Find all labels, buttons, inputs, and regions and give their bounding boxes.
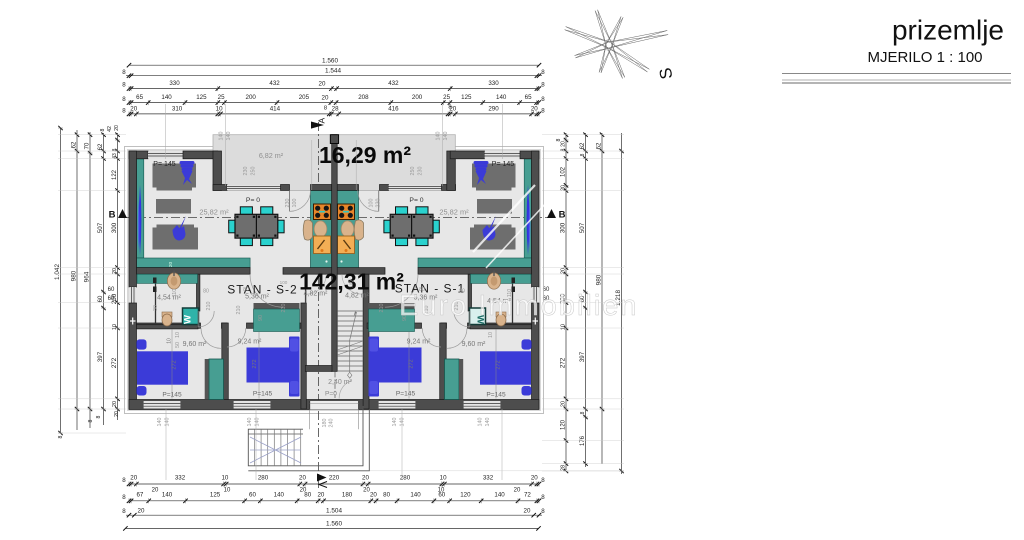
svg-text:25,82 m²: 25,82 m² <box>199 208 229 217</box>
svg-text:8: 8 <box>541 508 545 515</box>
svg-text:62: 62 <box>580 142 586 149</box>
svg-text:8: 8 <box>122 477 126 484</box>
svg-text:28: 28 <box>561 465 567 471</box>
svg-text:10: 10 <box>167 338 173 344</box>
svg-text:8: 8 <box>541 108 545 115</box>
svg-text:272: 272 <box>409 359 415 368</box>
svg-text:30: 30 <box>153 305 159 311</box>
svg-text:140: 140 <box>162 491 173 498</box>
svg-text:9,60 m²: 9,60 m² <box>462 341 486 348</box>
svg-text:P=145: P=145 <box>396 391 416 398</box>
svg-text:1.504: 1.504 <box>326 507 342 514</box>
svg-text:432: 432 <box>269 80 280 87</box>
svg-text:60: 60 <box>98 295 104 302</box>
svg-text:125: 125 <box>196 94 207 101</box>
svg-text:332: 332 <box>175 474 186 481</box>
svg-text:90: 90 <box>258 315 264 321</box>
svg-text:10: 10 <box>221 474 228 481</box>
svg-text:102: 102 <box>561 166 567 177</box>
svg-text:8: 8 <box>580 411 586 414</box>
svg-text:140: 140 <box>400 418 406 427</box>
svg-text:prizemlje: prizemlje <box>892 15 1004 46</box>
svg-text:6,82 m²: 6,82 m² <box>259 151 284 160</box>
svg-text:P=145: P=145 <box>253 391 273 398</box>
svg-text:20: 20 <box>114 411 120 417</box>
svg-text:125: 125 <box>461 94 472 101</box>
svg-text:507: 507 <box>97 222 104 233</box>
svg-text:62: 62 <box>597 142 603 149</box>
svg-text:230: 230 <box>243 167 249 176</box>
svg-text:8: 8 <box>541 494 545 501</box>
svg-text:10: 10 <box>440 474 447 481</box>
svg-text:8: 8 <box>541 81 545 88</box>
svg-text:432: 432 <box>388 80 399 87</box>
svg-text:8: 8 <box>541 96 545 103</box>
svg-text:P= 145: P= 145 <box>153 161 175 168</box>
svg-text:8: 8 <box>58 435 64 438</box>
svg-text:140: 140 <box>485 418 491 427</box>
svg-text:20: 20 <box>561 185 567 191</box>
svg-text:250: 250 <box>410 167 416 176</box>
svg-text:20: 20 <box>370 491 377 498</box>
svg-text:MJERILO 1 : 100: MJERILO 1 : 100 <box>867 49 982 66</box>
svg-text:10: 10 <box>488 332 494 338</box>
svg-text:205: 205 <box>299 94 310 101</box>
svg-text:1.042: 1.042 <box>54 264 61 280</box>
svg-text:414: 414 <box>270 106 281 113</box>
svg-text:25,82 m²: 25,82 m² <box>439 208 469 217</box>
svg-text:280: 280 <box>258 474 269 481</box>
svg-text:180: 180 <box>322 419 328 428</box>
svg-text:140: 140 <box>157 418 163 427</box>
svg-text:8: 8 <box>324 106 327 112</box>
svg-text:65: 65 <box>136 94 143 101</box>
svg-text:120: 120 <box>460 491 471 498</box>
svg-text:8: 8 <box>88 419 94 422</box>
svg-text:1.544: 1.544 <box>325 68 341 75</box>
svg-text:20: 20 <box>299 474 306 481</box>
svg-text:20: 20 <box>514 488 521 494</box>
svg-text:62: 62 <box>72 141 78 148</box>
svg-text:10: 10 <box>112 324 118 330</box>
svg-text:210: 210 <box>206 302 212 311</box>
svg-text:140: 140 <box>219 132 225 141</box>
svg-text:P= 145: P= 145 <box>492 161 514 168</box>
svg-text:S: S <box>656 66 677 80</box>
svg-text:272: 272 <box>252 359 258 368</box>
svg-text:20: 20 <box>317 491 324 498</box>
svg-text:100: 100 <box>292 199 298 208</box>
svg-text:980: 980 <box>71 270 78 281</box>
svg-text:8: 8 <box>122 494 126 501</box>
svg-text:210: 210 <box>281 304 287 313</box>
svg-text:80: 80 <box>243 287 249 293</box>
svg-text:507: 507 <box>579 222 586 233</box>
svg-text:B: B <box>109 210 116 221</box>
svg-text:140: 140 <box>255 418 261 427</box>
svg-text:9,60 m²: 9,60 m² <box>183 341 207 348</box>
svg-text:8: 8 <box>448 104 451 110</box>
svg-text:332: 332 <box>483 474 494 481</box>
svg-text:210: 210 <box>379 304 385 313</box>
svg-text:P= 0: P= 0 <box>246 197 260 204</box>
svg-text:140: 140 <box>496 94 507 101</box>
svg-text:230: 230 <box>285 199 291 208</box>
svg-text:140: 140 <box>161 94 172 101</box>
svg-text:10: 10 <box>561 324 567 330</box>
svg-text:100: 100 <box>280 280 288 285</box>
svg-text:10: 10 <box>175 332 181 338</box>
svg-text:8: 8 <box>556 138 562 141</box>
svg-text:4,82 m²: 4,82 m² <box>345 293 369 300</box>
svg-text:330: 330 <box>169 80 180 87</box>
svg-text:5,36 m²: 5,36 m² <box>245 294 269 301</box>
svg-text:230: 230 <box>418 167 424 176</box>
svg-text:20: 20 <box>130 474 137 481</box>
svg-text:8: 8 <box>122 108 126 115</box>
svg-text:300: 300 <box>560 222 567 233</box>
svg-text:20: 20 <box>112 268 118 274</box>
svg-text:20: 20 <box>561 401 567 407</box>
svg-text:220: 220 <box>329 474 340 481</box>
svg-text:60: 60 <box>249 491 256 498</box>
svg-text:300: 300 <box>111 222 118 233</box>
svg-text:Euro Immobilien: Euro Immobilien <box>399 290 639 322</box>
svg-text:272: 272 <box>560 357 567 368</box>
svg-text:140: 140 <box>436 132 442 141</box>
svg-text:50: 50 <box>175 342 181 348</box>
svg-text:P=145: P=145 <box>162 392 182 399</box>
svg-text:20: 20 <box>114 125 120 131</box>
svg-text:20: 20 <box>168 262 174 268</box>
svg-text:60: 60 <box>108 296 115 302</box>
svg-text:20: 20 <box>152 488 159 494</box>
svg-text:140: 140 <box>274 491 285 498</box>
svg-text:272: 272 <box>172 360 178 369</box>
svg-text:70: 70 <box>85 142 91 149</box>
svg-text:140: 140 <box>443 132 449 141</box>
svg-text:W: W <box>183 315 194 324</box>
svg-text:280: 280 <box>400 474 411 481</box>
svg-text:120: 120 <box>561 419 567 430</box>
svg-text:65: 65 <box>525 94 532 101</box>
svg-text:20: 20 <box>362 474 369 481</box>
svg-text:980: 980 <box>596 274 603 285</box>
svg-text:272: 272 <box>496 360 502 369</box>
svg-text:397: 397 <box>579 351 586 362</box>
svg-text:8: 8 <box>541 477 545 484</box>
svg-text:B: B <box>559 210 566 221</box>
svg-text:62: 62 <box>98 143 104 150</box>
svg-text:8: 8 <box>96 415 102 418</box>
svg-text:1.560: 1.560 <box>326 521 342 528</box>
svg-text:20: 20 <box>322 95 329 102</box>
svg-text:180: 180 <box>342 491 353 498</box>
svg-text:230: 230 <box>376 199 382 208</box>
svg-text:100: 100 <box>349 280 354 288</box>
svg-text:110: 110 <box>172 289 178 298</box>
svg-text:8: 8 <box>580 153 586 156</box>
svg-text:28: 28 <box>332 106 339 113</box>
svg-text:9,24 m²: 9,24 m² <box>407 339 431 346</box>
svg-text:290: 290 <box>488 106 499 113</box>
svg-text:25: 25 <box>443 94 450 101</box>
svg-text:397: 397 <box>97 351 104 362</box>
svg-text:25: 25 <box>218 94 225 101</box>
svg-text:8: 8 <box>122 69 126 76</box>
svg-text:A: A <box>317 118 327 124</box>
svg-text:250: 250 <box>251 167 257 176</box>
svg-text:80: 80 <box>383 491 390 498</box>
svg-text:140: 140 <box>247 418 253 427</box>
svg-text:60: 60 <box>108 287 115 293</box>
svg-text:20: 20 <box>112 401 118 407</box>
svg-text:20: 20 <box>524 507 531 514</box>
svg-text:16,29 m²: 16,29 m² <box>319 142 411 168</box>
svg-text:42: 42 <box>107 126 113 132</box>
svg-text:8: 8 <box>122 508 126 515</box>
svg-text:140: 140 <box>226 132 232 141</box>
svg-text:20: 20 <box>130 106 137 113</box>
svg-text:272: 272 <box>111 357 118 368</box>
svg-text:20: 20 <box>138 507 145 514</box>
svg-text:43: 43 <box>112 153 118 159</box>
svg-text:4,82 m²: 4,82 m² <box>304 291 328 298</box>
svg-text:8: 8 <box>122 96 126 103</box>
svg-text:140: 140 <box>392 418 398 427</box>
svg-text:10: 10 <box>216 106 223 113</box>
svg-text:P= 0: P= 0 <box>409 197 423 204</box>
svg-text:20: 20 <box>531 474 538 481</box>
svg-text:10: 10 <box>224 488 231 494</box>
svg-text:P=0: P=0 <box>325 390 337 397</box>
svg-text:20: 20 <box>561 268 567 274</box>
svg-text:140: 140 <box>478 418 484 427</box>
svg-text:67: 67 <box>136 491 143 498</box>
svg-text:125: 125 <box>210 491 221 498</box>
svg-text:8: 8 <box>100 128 106 131</box>
svg-text:72: 72 <box>524 491 531 498</box>
svg-text:20: 20 <box>531 106 538 113</box>
svg-text:122: 122 <box>112 169 118 180</box>
svg-text:210: 210 <box>236 306 242 315</box>
svg-text:2,40 m²: 2,40 m² <box>328 379 352 386</box>
svg-text:100: 100 <box>369 199 375 208</box>
svg-text:310: 310 <box>172 106 183 113</box>
svg-text:140: 140 <box>410 491 421 498</box>
svg-text:60: 60 <box>438 491 445 498</box>
svg-text:200: 200 <box>246 94 257 101</box>
svg-text:140: 140 <box>494 491 505 498</box>
svg-text:8: 8 <box>541 69 545 76</box>
svg-text:8: 8 <box>122 81 126 88</box>
svg-text:208: 208 <box>358 94 369 101</box>
svg-text:20: 20 <box>319 81 326 88</box>
svg-text:P=145: P=145 <box>486 392 506 399</box>
svg-text:80: 80 <box>203 289 209 295</box>
svg-text:240: 240 <box>329 419 335 428</box>
svg-text:9,24 m²: 9,24 m² <box>238 339 262 346</box>
svg-text:80: 80 <box>304 491 311 498</box>
svg-text:200: 200 <box>412 94 423 101</box>
svg-text:1.560: 1.560 <box>322 57 338 64</box>
svg-text:416: 416 <box>388 106 399 113</box>
svg-text:140: 140 <box>165 418 171 427</box>
svg-text:964: 964 <box>84 271 91 282</box>
svg-text:330: 330 <box>488 80 499 87</box>
